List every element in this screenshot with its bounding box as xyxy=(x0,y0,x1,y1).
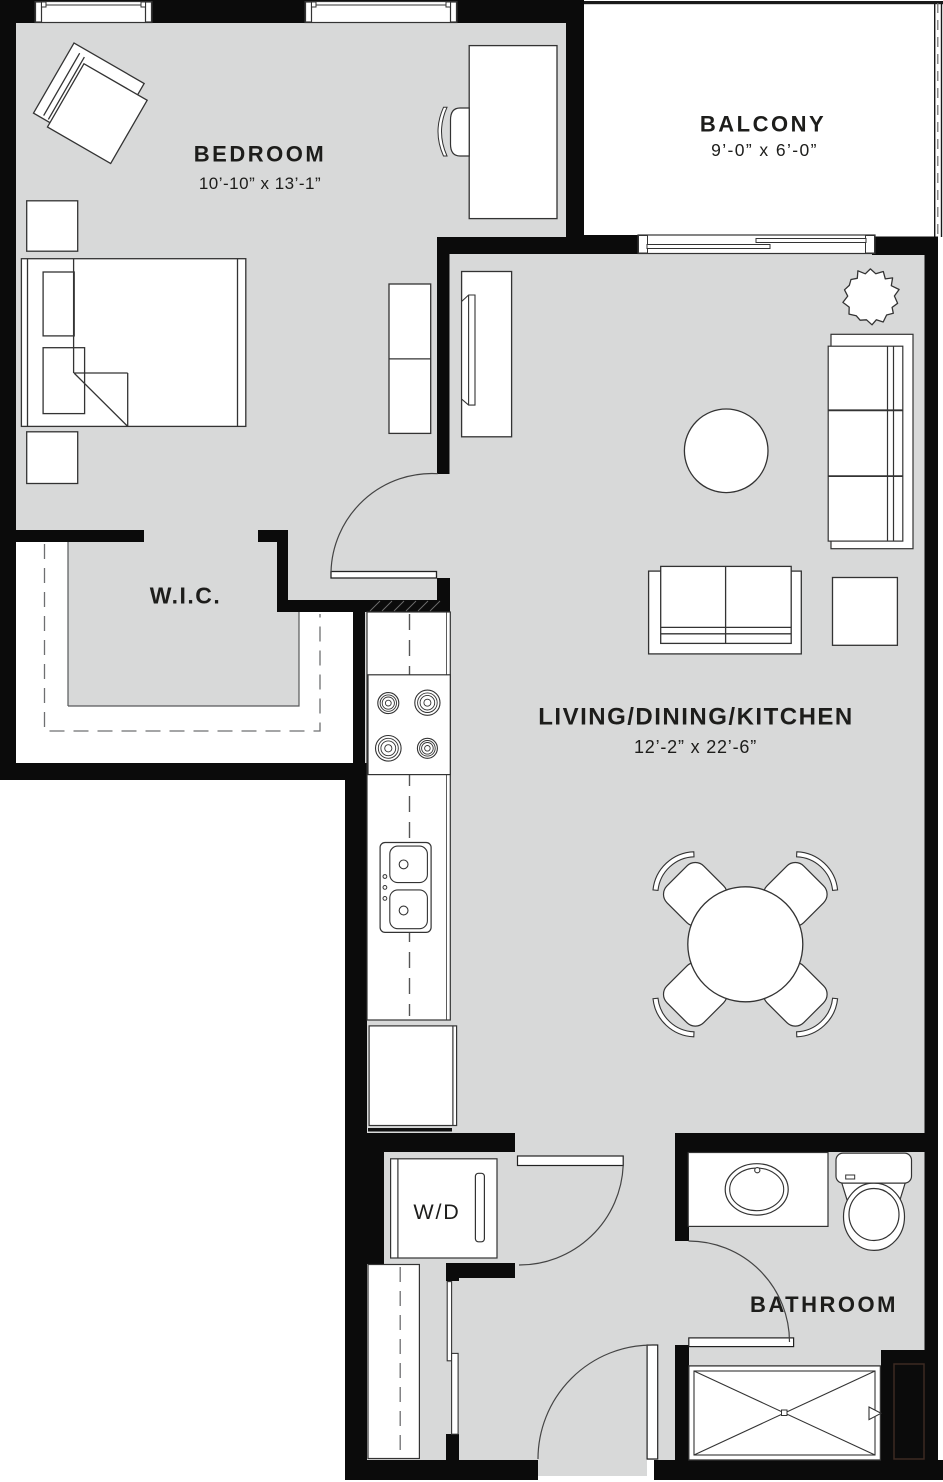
svg-text:W/D: W/D xyxy=(413,1200,460,1224)
svg-text:BEDROOM: BEDROOM xyxy=(194,142,326,167)
svg-text:BALCONY: BALCONY xyxy=(700,112,826,137)
svg-text:LIVING/DINING/KITCHEN: LIVING/DINING/KITCHEN xyxy=(538,704,854,731)
svg-text:10’-10” x 13’-1”: 10’-10” x 13’-1” xyxy=(199,174,321,193)
svg-text:9’-0” x 6’-0”: 9’-0” x 6’-0” xyxy=(711,140,818,160)
svg-text:12’-2” x 22’-6”: 12’-2” x 22’-6” xyxy=(634,737,757,757)
svg-text:W.I.C.: W.I.C. xyxy=(150,583,222,609)
svg-text:BATHROOM: BATHROOM xyxy=(750,1292,898,1317)
